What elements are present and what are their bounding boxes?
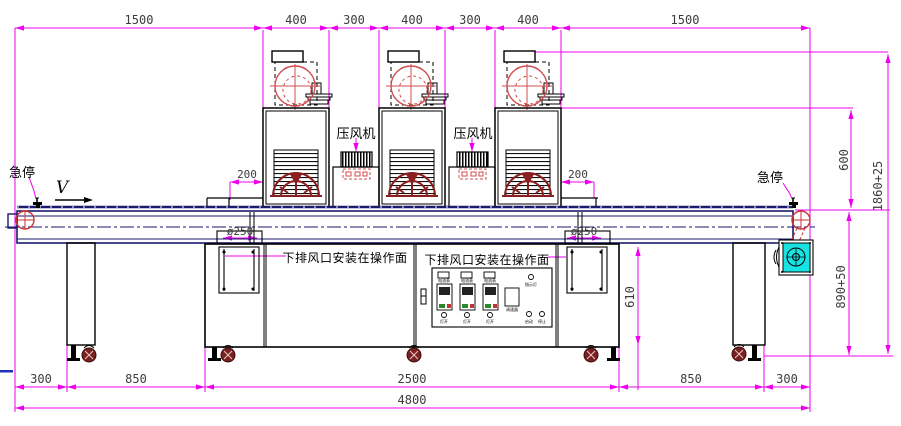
panel-stop-label: 停止: [538, 320, 546, 324]
dimension-arrows: [15, 25, 891, 410]
dim-top-400-2: 400: [401, 14, 423, 26]
dim-bottom-850-right: 850: [680, 373, 702, 385]
lower-cabinet: [205, 244, 619, 347]
machine-linework: [0, 0, 901, 426]
panel-indicator-label: 指示灯: [525, 283, 537, 287]
estop-label-left: 急停: [9, 162, 35, 181]
dim-duct-left: ø250: [227, 226, 254, 237]
blower-label-right: 压风机: [453, 123, 492, 142]
dim-height-cabinet: 610: [624, 286, 636, 308]
dim-height-belt: 890+50: [835, 265, 847, 308]
dim-top-1500-right: 1500: [671, 14, 700, 26]
dim-total-length: 4800: [398, 394, 427, 406]
dim-bottom-850-left: 850: [125, 373, 147, 385]
dim-height-hood: 600: [838, 149, 850, 171]
estop-label-right: 急停: [757, 167, 783, 186]
panel-speed-knob-label: 调速器: [506, 308, 518, 312]
panel-start-label: 启动: [525, 320, 533, 324]
exhaust-note-left: 下排风口安装在操作面: [282, 249, 407, 266]
dim-bottom-300-right: 300: [776, 373, 798, 385]
dim-duct-right: ø250: [571, 226, 598, 237]
dim-top-400-1: 400: [285, 14, 307, 26]
dim-bottom-300-left: 300: [30, 373, 52, 385]
dim-top-1500-left: 1500: [125, 14, 154, 26]
dim-gap-right: 200: [568, 169, 588, 180]
dim-height-overall: 1860+25: [872, 161, 884, 212]
drive-motor: [774, 240, 813, 275]
panel-lamp-switch-1: 灯开: [440, 320, 448, 324]
dim-bottom-2500: 2500: [398, 373, 427, 385]
roof-blowers: [272, 51, 564, 105]
panel-meter-label-3: 电流表: [484, 279, 496, 283]
panel-lamp-switch-2: 灯开: [463, 320, 471, 324]
dim-top-300-1: 300: [343, 14, 365, 26]
exhaust-note-right: 下排风口安装在操作面: [424, 251, 549, 268]
dimension-lines: [15, 28, 893, 412]
cad-drawing-uv-conveyor: 1500 400 300 400 300 400 1500 200 200 ø2…: [0, 0, 901, 426]
panel-meter-label-1: 电流表: [438, 279, 450, 283]
belt-direction-label: V: [56, 178, 68, 198]
conveyor: [5, 207, 815, 243]
dim-top-400-3: 400: [517, 14, 539, 26]
blower-label-left: 压风机: [336, 123, 375, 142]
panel-meter-label-2: 电流表: [461, 279, 473, 283]
margin-mark: [0, 370, 13, 373]
dim-gap-left: 200: [237, 169, 257, 180]
belt-pulleys: [16, 211, 810, 254]
dim-top-300-2: 300: [459, 14, 481, 26]
panel-lamp-switch-3: 灯开: [486, 320, 494, 324]
